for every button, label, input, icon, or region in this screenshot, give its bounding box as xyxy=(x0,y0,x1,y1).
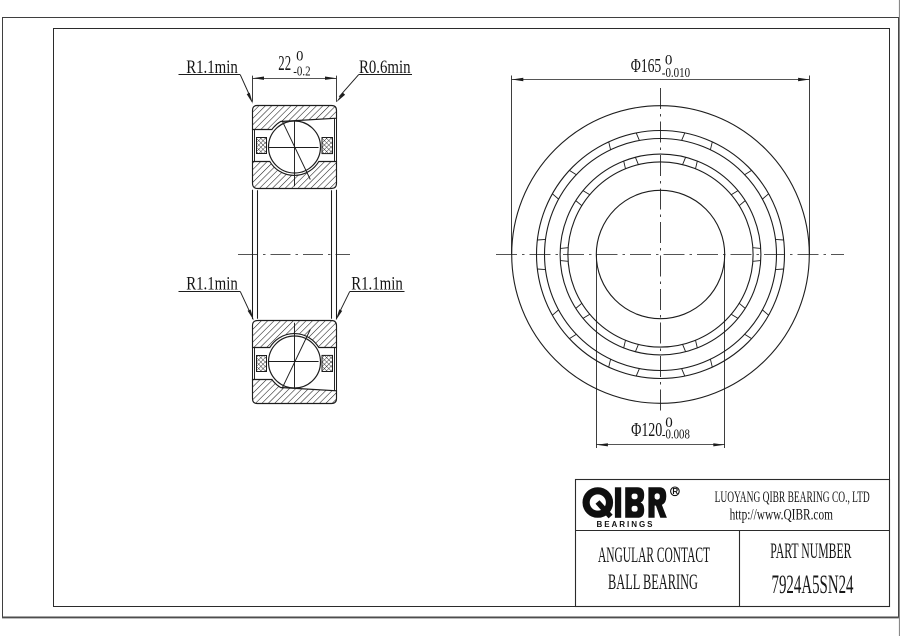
svg-text:22: 22 xyxy=(278,53,291,75)
svg-text:LUOYANG QIBR BEARING CO., LTD: LUOYANG QIBR BEARING CO., LTD xyxy=(715,489,870,506)
svg-text:http://www.QIBR.com: http://www.QIBR.com xyxy=(730,506,834,523)
svg-text:ANGULAR CONTACT: ANGULAR CONTACT xyxy=(598,542,710,567)
svg-text:-0.2: -0.2 xyxy=(293,64,310,79)
svg-text:Φ165: Φ165 xyxy=(631,55,662,77)
svg-text:PART NUMBER: PART NUMBER xyxy=(770,538,851,563)
svg-text:BEARINGS: BEARINGS xyxy=(597,520,654,529)
svg-text:0: 0 xyxy=(296,48,303,64)
svg-text:Φ120: Φ120 xyxy=(631,419,662,441)
svg-text:7924A5SN24: 7924A5SN24 xyxy=(772,570,854,599)
svg-text:R: R xyxy=(672,487,678,496)
svg-text:BALL BEARING: BALL BEARING xyxy=(608,569,698,594)
svg-text:-0.008: -0.008 xyxy=(662,428,690,443)
svg-text:-0.010: -0.010 xyxy=(662,66,690,81)
